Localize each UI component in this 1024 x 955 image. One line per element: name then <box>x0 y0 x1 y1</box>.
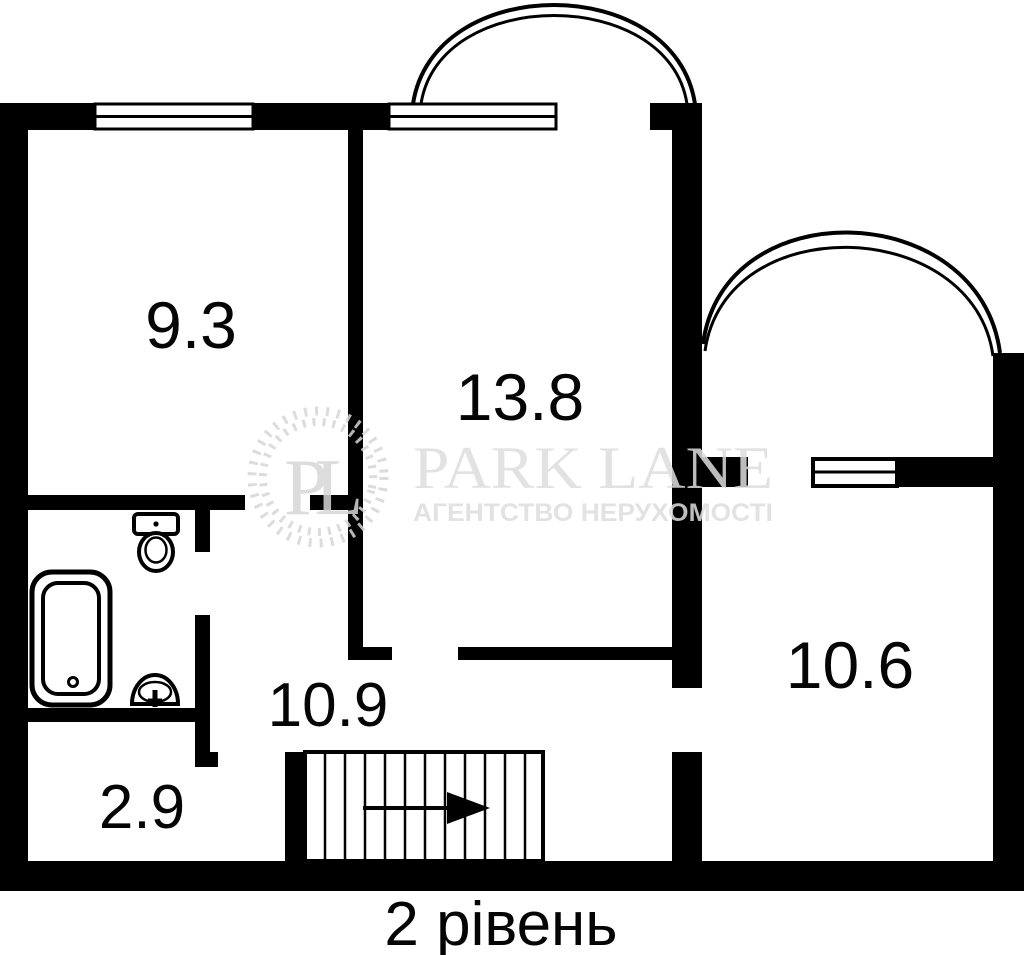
staircase <box>305 752 543 861</box>
floor-caption: 2 рівень <box>384 890 617 955</box>
wall-stairwell <box>285 752 305 861</box>
room-label-9-3: 9.3 <box>145 288 237 362</box>
watermark-tagline: АГЕНТСТВО НЕРУХОМОСТІ <box>413 499 773 527</box>
balcony-arc-top <box>413 5 695 104</box>
window-icon <box>389 104 556 129</box>
wall-room-middle-bottom <box>458 647 675 660</box>
sink-icon <box>132 675 178 707</box>
floor-plan: PL PARK LANE АГЕНТСТВО НЕРУХОМОСТІ 9.3 1… <box>0 0 1024 955</box>
wall-room-right-top-right <box>897 457 1024 487</box>
room-label-10-6: 10.6 <box>786 628 914 702</box>
room-label-13-8: 13.8 <box>456 360 584 434</box>
watermark-brand: PARK LANE <box>413 435 773 501</box>
wall-left-outer <box>0 103 28 891</box>
room-label-10-9: 10.9 <box>268 671 389 740</box>
wall-bath-top-left <box>28 495 245 510</box>
wall-center-vertical-upper <box>672 103 702 688</box>
floor-plan-page: PL PARK LANE АГЕНТСТВО НЕРУХОМОСТІ 9.3 1… <box>0 0 1024 955</box>
wall-bath-bottom <box>28 708 195 722</box>
watermark-monogram: PL <box>284 444 359 532</box>
wall-bath-right-upper <box>195 497 210 552</box>
wall-bath-right-lower <box>195 615 210 767</box>
room-label-2-9: 2.9 <box>99 773 185 842</box>
wall-bath-right-foot <box>195 752 218 767</box>
wall-top-segment-1 <box>0 103 95 130</box>
wall-top-segment-2 <box>253 103 392 130</box>
wall-bottom-outer <box>0 861 1024 891</box>
window-icon <box>95 104 253 129</box>
window-icon <box>813 459 897 486</box>
balcony-arc-right <box>703 233 1000 356</box>
wall-divider-foot <box>363 647 392 660</box>
wall-divider-vertical <box>348 130 363 660</box>
bathtub-icon <box>32 572 110 705</box>
wall-right-outer <box>993 353 1024 891</box>
toilet-icon <box>134 514 178 571</box>
